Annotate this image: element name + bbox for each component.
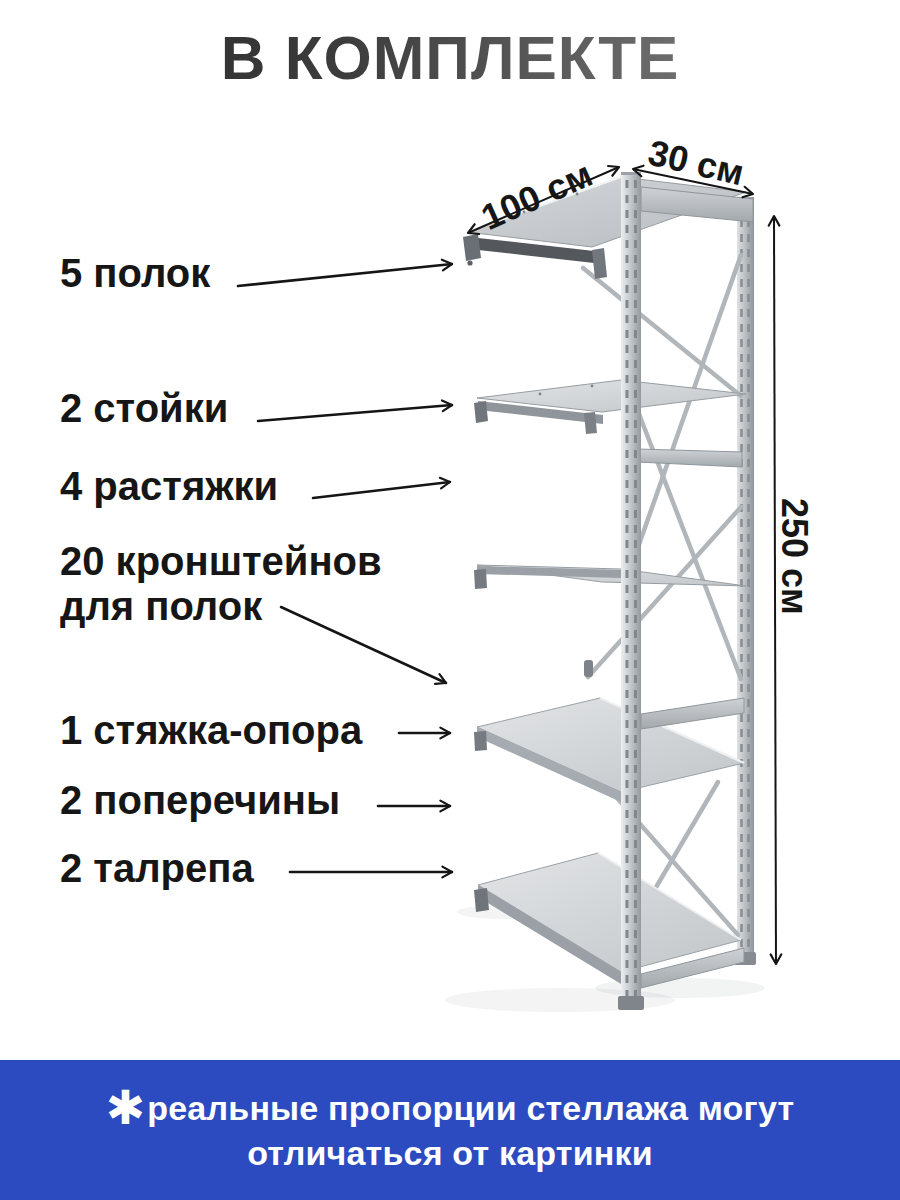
side-beams <box>637 187 753 988</box>
height-dimension-label: 250 см <box>776 498 812 608</box>
crossbar-upper <box>637 449 742 467</box>
asterisk-icon: ✱ <box>106 1089 146 1127</box>
crossbar-lower <box>641 698 744 729</box>
front-upright-foot <box>618 996 644 1010</box>
back-upright <box>734 197 756 965</box>
shelving-unit-illustration <box>0 0 900 1060</box>
arrow-to-shelves <box>238 264 452 286</box>
disclaimer-banner: ✱ реальные пропорции стеллажа могут отли… <box>0 1060 900 1200</box>
arrow-to-uprights <box>258 405 452 421</box>
callout-shelves: 5 полок <box>60 251 210 296</box>
callout-brackets: 20 кронштейнов для полок <box>60 539 382 629</box>
front-upright <box>618 172 644 1010</box>
product-infographic: В КОМПЛЕКТЕ <box>0 0 900 1200</box>
shelf-2 <box>474 380 746 434</box>
disclaimer-line-1: реальные пропорции стеллажа могут <box>147 1089 794 1127</box>
callout-crossbars: 2 поперечины <box>60 778 340 823</box>
disclaimer-line-2: отличаться от картинки <box>247 1134 653 1172</box>
callout-tie-support: 1 стяжка-опора <box>60 708 362 753</box>
arrow-to-braces <box>313 482 450 498</box>
callout-braces: 4 растяжки <box>60 464 278 509</box>
callout-turnbuckles: 2 талрепа <box>60 846 254 891</box>
callout-uprights: 2 стойки <box>60 386 228 431</box>
shelves <box>463 177 746 984</box>
diagonal-braces <box>583 255 741 962</box>
